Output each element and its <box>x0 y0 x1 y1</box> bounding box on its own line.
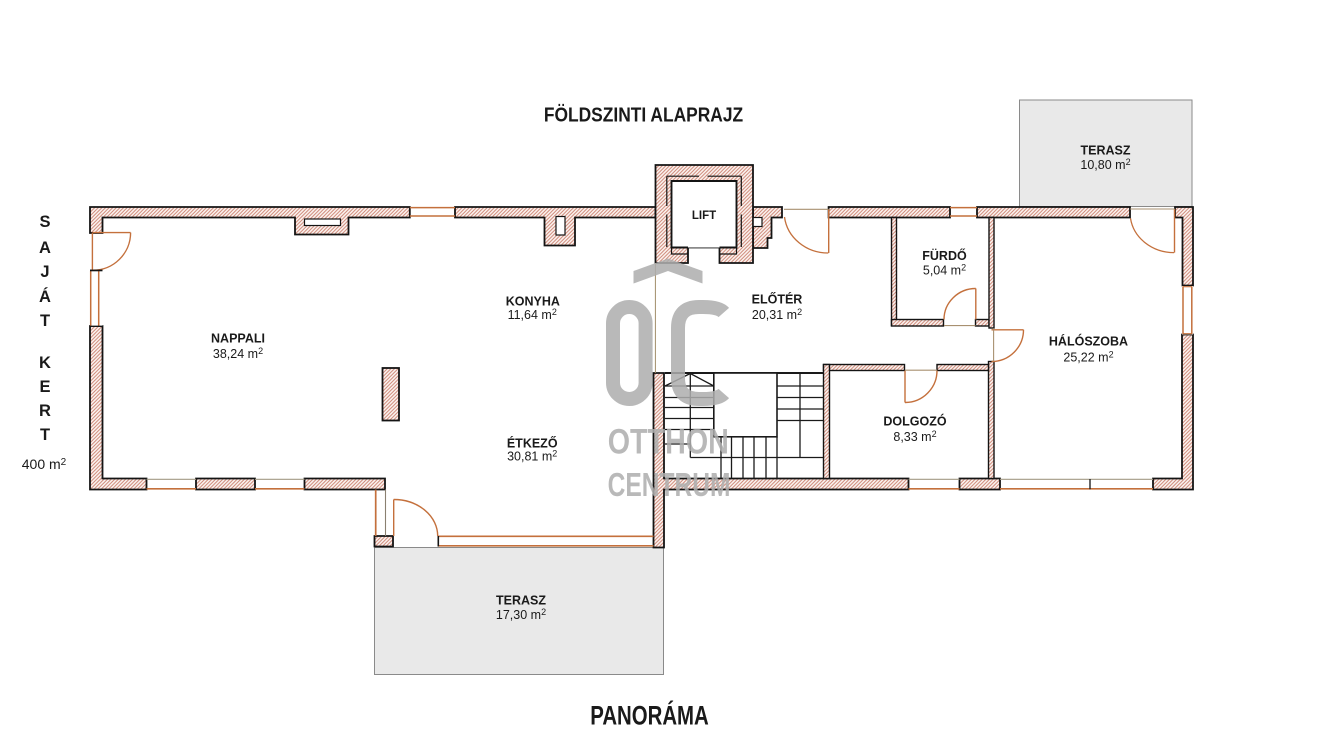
svg-text:A: A <box>39 239 51 257</box>
svg-text:OTTHON: OTTHON <box>608 422 729 461</box>
svg-text:DOLGOZÓ: DOLGOZÓ <box>883 414 946 429</box>
svg-text:ÉTKEZŐ: ÉTKEZŐ <box>507 436 558 451</box>
svg-text:30,81 m2: 30,81 m2 <box>507 449 557 464</box>
svg-text:FÜRDŐ: FÜRDŐ <box>922 248 967 263</box>
svg-text:T: T <box>40 426 50 444</box>
svg-text:HÁLÓSZOBA: HÁLÓSZOBA <box>1049 334 1128 349</box>
svg-text:20,31 m2: 20,31 m2 <box>752 307 802 322</box>
svg-text:K: K <box>39 354 51 372</box>
svg-text:CENTRUM: CENTRUM <box>608 468 731 504</box>
svg-text:NAPPALI: NAPPALI <box>211 332 265 346</box>
svg-text:J: J <box>40 263 49 281</box>
svg-text:5,04 m2: 5,04 m2 <box>923 263 966 278</box>
svg-text:R: R <box>39 402 51 420</box>
svg-text:TERASZ: TERASZ <box>1081 144 1131 158</box>
svg-text:LIFT: LIFT <box>692 210 716 222</box>
svg-text:ELŐTÉR: ELŐTÉR <box>752 292 803 307</box>
svg-text:400 m2: 400 m2 <box>22 456 67 472</box>
svg-text:PANORÁMA: PANORÁMA <box>590 700 709 731</box>
svg-text:8,33 m2: 8,33 m2 <box>893 429 936 444</box>
svg-text:10,80 m2: 10,80 m2 <box>1080 157 1130 172</box>
svg-text:17,30 m2: 17,30 m2 <box>496 607 546 622</box>
svg-text:E: E <box>39 378 50 396</box>
svg-text:S: S <box>39 213 50 231</box>
svg-text:FÖLDSZINTI ALAPRAJZ: FÖLDSZINTI ALAPRAJZ <box>544 103 743 125</box>
svg-text:Á: Á <box>39 287 51 306</box>
svg-text:TERASZ: TERASZ <box>496 594 546 608</box>
svg-text:11,64 m2: 11,64 m2 <box>508 307 557 322</box>
svg-text:T: T <box>40 312 50 330</box>
svg-text:25,22 m2: 25,22 m2 <box>1063 350 1113 365</box>
svg-text:38,24 m2: 38,24 m2 <box>213 346 263 361</box>
